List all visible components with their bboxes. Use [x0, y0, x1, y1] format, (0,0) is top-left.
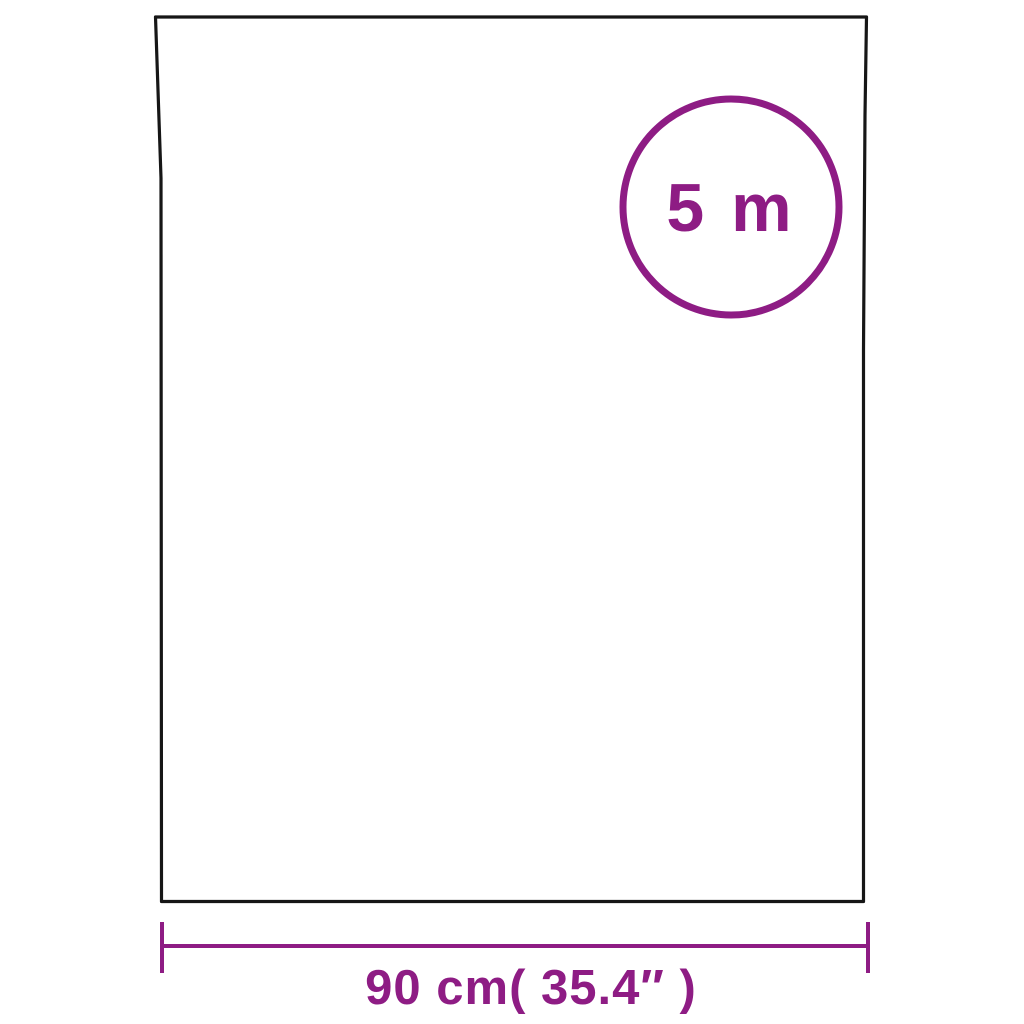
diagram-svg: 5 m 90 cm( 35.4″ ): [0, 0, 1024, 1024]
length-badge: 5 m: [623, 99, 839, 315]
dimension-diagram: 5 m 90 cm( 35.4″ ): [0, 0, 1024, 1024]
product-sheet-outline: [156, 17, 867, 902]
width-dimension: 90 cm( 35.4″ ): [162, 922, 868, 1015]
length-badge-label: 5 m: [666, 170, 795, 246]
width-dimension-label: 90 cm( 35.4″ ): [365, 961, 697, 1015]
